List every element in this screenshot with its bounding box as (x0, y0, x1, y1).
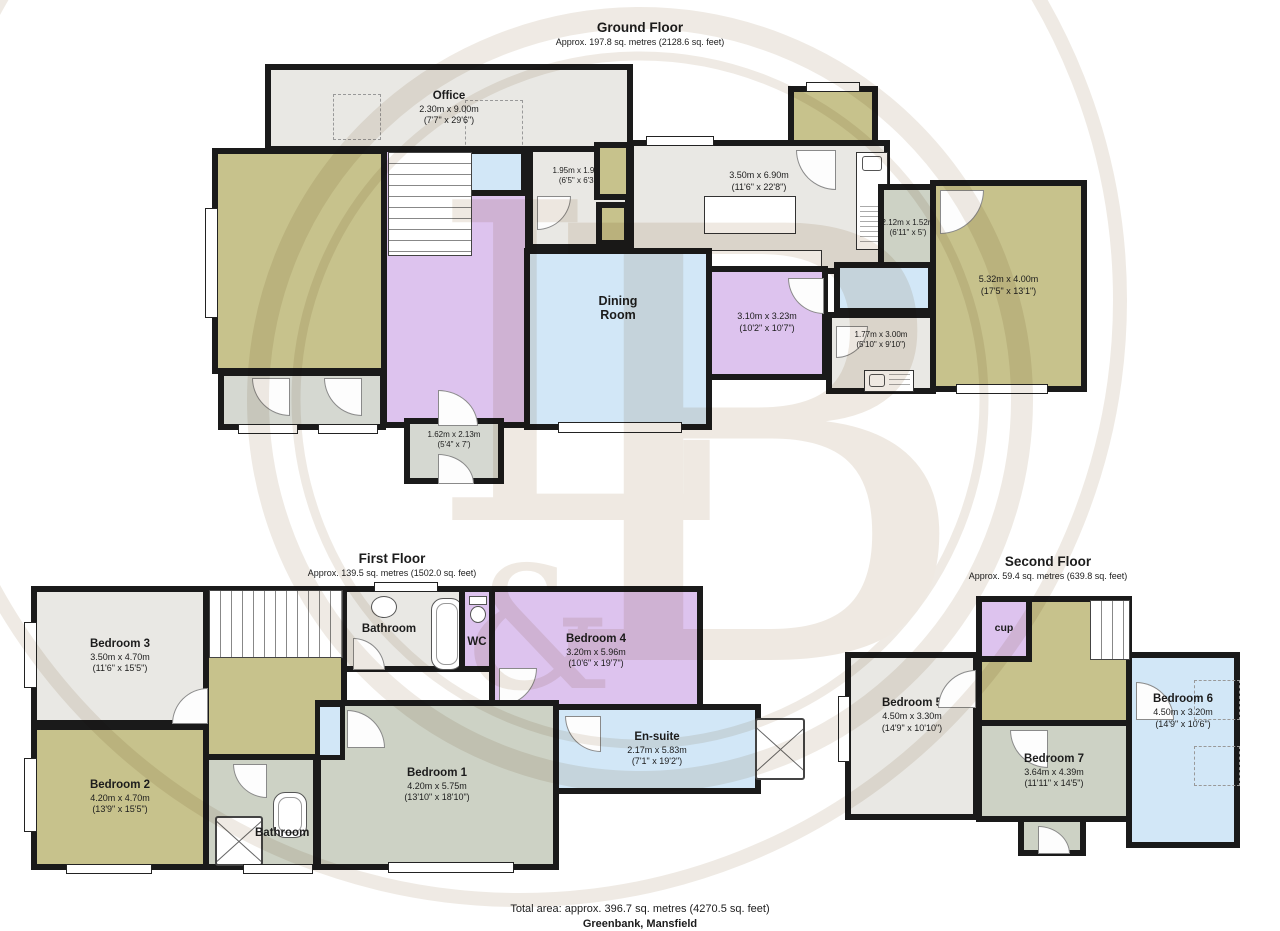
bay-window (558, 422, 682, 433)
window (956, 384, 1048, 394)
room-label: Bedroom 7 3.64m x 4.39m (11'11" x 14'5") (1024, 752, 1084, 790)
room-label: Bathroom (255, 826, 309, 841)
door-arc (1038, 826, 1070, 854)
floor-subtitle: Approx. 59.4 sq. metres (639.8 sq. feet) (898, 571, 1198, 581)
shower-icon (215, 816, 263, 866)
staircase (209, 590, 343, 658)
shower-icon (755, 718, 805, 780)
window (374, 582, 438, 592)
room-label: Dining Room (589, 294, 647, 323)
second-floor-title: Second Floor Approx. 59.4 sq. metres (63… (898, 554, 1198, 581)
window (646, 136, 714, 146)
door-arc (788, 278, 824, 314)
room-label: 3.50m x 6.90m (11'6" x 22'8") (729, 170, 789, 193)
room-label: 1.77m x 3.00m (5'10" x 9'10") (855, 330, 908, 351)
room-label: Bedroom 4 3.20m x 5.96m (10'6" x 19'7") (566, 632, 626, 670)
room-label: 1.62m x 2.13m (5'4" x 7') (428, 430, 481, 451)
room-label: Office 2.30m x 9.00m (7'7" x 29'6") (419, 89, 479, 127)
floor-title: First Floor (242, 551, 542, 566)
door-arc (233, 764, 267, 798)
room-label: Bedroom 5 4.50m x 3.30m (14'9" x 10'10") (882, 696, 942, 734)
window (318, 424, 378, 434)
floorplan-page: Ground Floor Approx. 197.8 sq. metres (2… (0, 0, 1280, 931)
door-arc (438, 454, 474, 484)
utility-sink-unit (864, 370, 914, 392)
room-label: Bedroom 2 4.20m x 4.70m (13'9" x 15'5") (90, 778, 150, 816)
room-bedroom7: Bedroom 7 3.64m x 4.39m (11'11" x 14'5") (976, 720, 1132, 822)
window (806, 82, 860, 92)
floor-subtitle: Approx. 197.8 sq. metres (2128.6 sq. fee… (440, 37, 840, 47)
room-label: Bedroom 6 4.50m x 3.20m (14'9" x 10'6") (1153, 692, 1213, 730)
furniture-dashed-box (1194, 746, 1240, 786)
floor-subtitle: Approx. 139.5 sq. metres (1502.0 sq. fee… (242, 568, 542, 578)
door-arc (565, 716, 601, 752)
room-ensuite: En-suite 2.17m x 5.83m (7'1" x 19'2") (553, 704, 761, 794)
room-bathroom-bottom: Bathroom (203, 754, 319, 870)
floor-title: Ground Floor (440, 20, 840, 35)
room-label: Bedroom 1 4.20m x 5.75m (13'10" x 18'10"… (404, 766, 469, 804)
room-store-small (594, 142, 632, 200)
door-arc (324, 378, 362, 416)
room-bedroom1: Bedroom 1 4.20m x 5.75m (13'10" x 18'10"… (315, 700, 559, 870)
window (838, 696, 850, 762)
room-label: 2.12m x 1.52m (6'11" x 5') (882, 218, 935, 239)
drainer-hatch (889, 374, 910, 388)
room-bathroom-top: Bathroom (341, 586, 465, 672)
staircase (388, 152, 472, 256)
window (24, 758, 37, 832)
room-airing (315, 702, 345, 760)
floor-title: Second Floor (898, 554, 1198, 569)
room-label: Bathroom (362, 622, 416, 637)
room-label: WC (467, 635, 486, 650)
address-text: Greenbank, Mansfield (340, 917, 940, 931)
first-floor-title: First Floor Approx. 139.5 sq. metres (15… (242, 551, 542, 578)
room-conservatory (218, 370, 386, 430)
sink-icon (371, 596, 397, 618)
sink-icon (862, 156, 882, 171)
toilet-icon (469, 596, 487, 623)
window (243, 864, 313, 874)
room-label: Bedroom 3 3.50m x 4.70m (11'6" x 15'5") (90, 637, 150, 675)
room-cupboard: cup (976, 596, 1032, 662)
room-dining: Dining Room (524, 248, 712, 430)
total-area-text: Total area: approx. 396.7 sq. metres (42… (340, 902, 940, 917)
room-label: 5.32m x 4.00m (17'5" x 13'1") (979, 274, 1039, 297)
window (66, 864, 152, 874)
room-sitting (212, 148, 387, 374)
room-family: 3.10m x 3.23m (10'2" x 10'7") (706, 266, 828, 380)
staircase (1090, 600, 1130, 660)
door-arc (353, 638, 385, 670)
sink-icon (869, 374, 885, 387)
room-pantry: 2.12m x 1.52m (6'11" x 5') (878, 184, 938, 272)
room-utility: 1.77m x 3.00m (5'10" x 9'10") (826, 312, 936, 394)
room-porch: 1.62m x 2.13m (5'4" x 7') (404, 418, 504, 484)
room-store-small (596, 202, 630, 246)
bedroom7-dormer (1018, 816, 1086, 856)
bay-window (388, 862, 514, 873)
room-label: 3.10m x 3.23m (10'2" x 10'7") (737, 311, 797, 334)
room-bedroom6: Bedroom 6 4.50m x 3.20m (14'9" x 10'6") (1126, 652, 1240, 848)
kitchen-island (704, 196, 796, 234)
window (24, 622, 37, 688)
bay-window (205, 208, 218, 318)
window (238, 424, 298, 434)
furniture-dashed-box (333, 94, 381, 140)
room-rear-lobby (834, 262, 934, 314)
ground-floor-title: Ground Floor Approx. 197.8 sq. metres (2… (440, 20, 840, 47)
door-arc (252, 378, 290, 416)
room-office: Office 2.30m x 9.00m (7'7" x 29'6") (265, 64, 633, 152)
room-garage: 5.32m x 4.00m (17'5" x 13'1") (930, 180, 1087, 392)
footer: Total area: approx. 396.7 sq. metres (42… (340, 902, 940, 931)
room-bedroom4: Bedroom 4 3.20m x 5.96m (10'6" x 19'7") (489, 586, 703, 716)
door-arc (940, 190, 984, 234)
room-label: En-suite 2.17m x 5.83m (7'1" x 19'2") (627, 730, 687, 768)
room-bedroom2: Bedroom 2 4.20m x 4.70m (13'9" x 15'5") (31, 724, 209, 870)
room-label: cup (995, 622, 1014, 636)
door-arc (537, 196, 571, 230)
door-arc (347, 710, 385, 748)
